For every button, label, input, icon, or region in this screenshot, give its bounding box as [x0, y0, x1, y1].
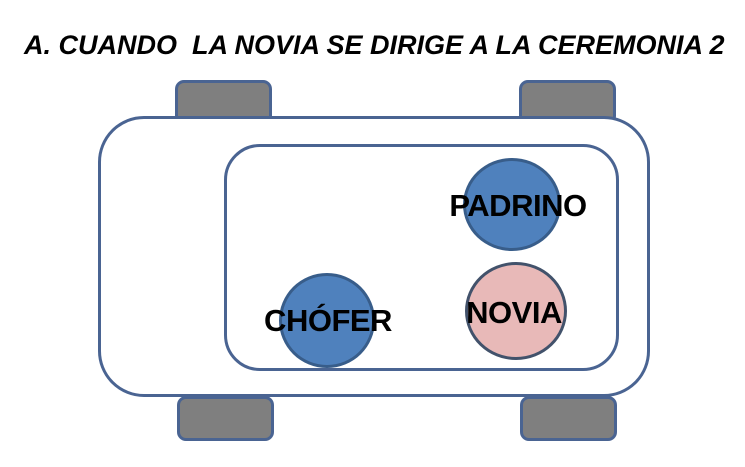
wheel-bottom-left-icon	[177, 396, 274, 441]
seat-label-padrino: PADRINO	[449, 188, 586, 224]
car-seating-diagram: A. CUANDO LA NOVIA SE DIRIGE A LA CEREMO…	[0, 0, 745, 467]
diagram-title: A. CUANDO LA NOVIA SE DIRIGE A LA CEREMO…	[24, 30, 725, 61]
seat-label-chofer: CHÓFER	[264, 303, 392, 339]
wheel-bottom-right-icon	[520, 396, 617, 441]
seat-label-novia: NOVIA	[466, 295, 562, 331]
